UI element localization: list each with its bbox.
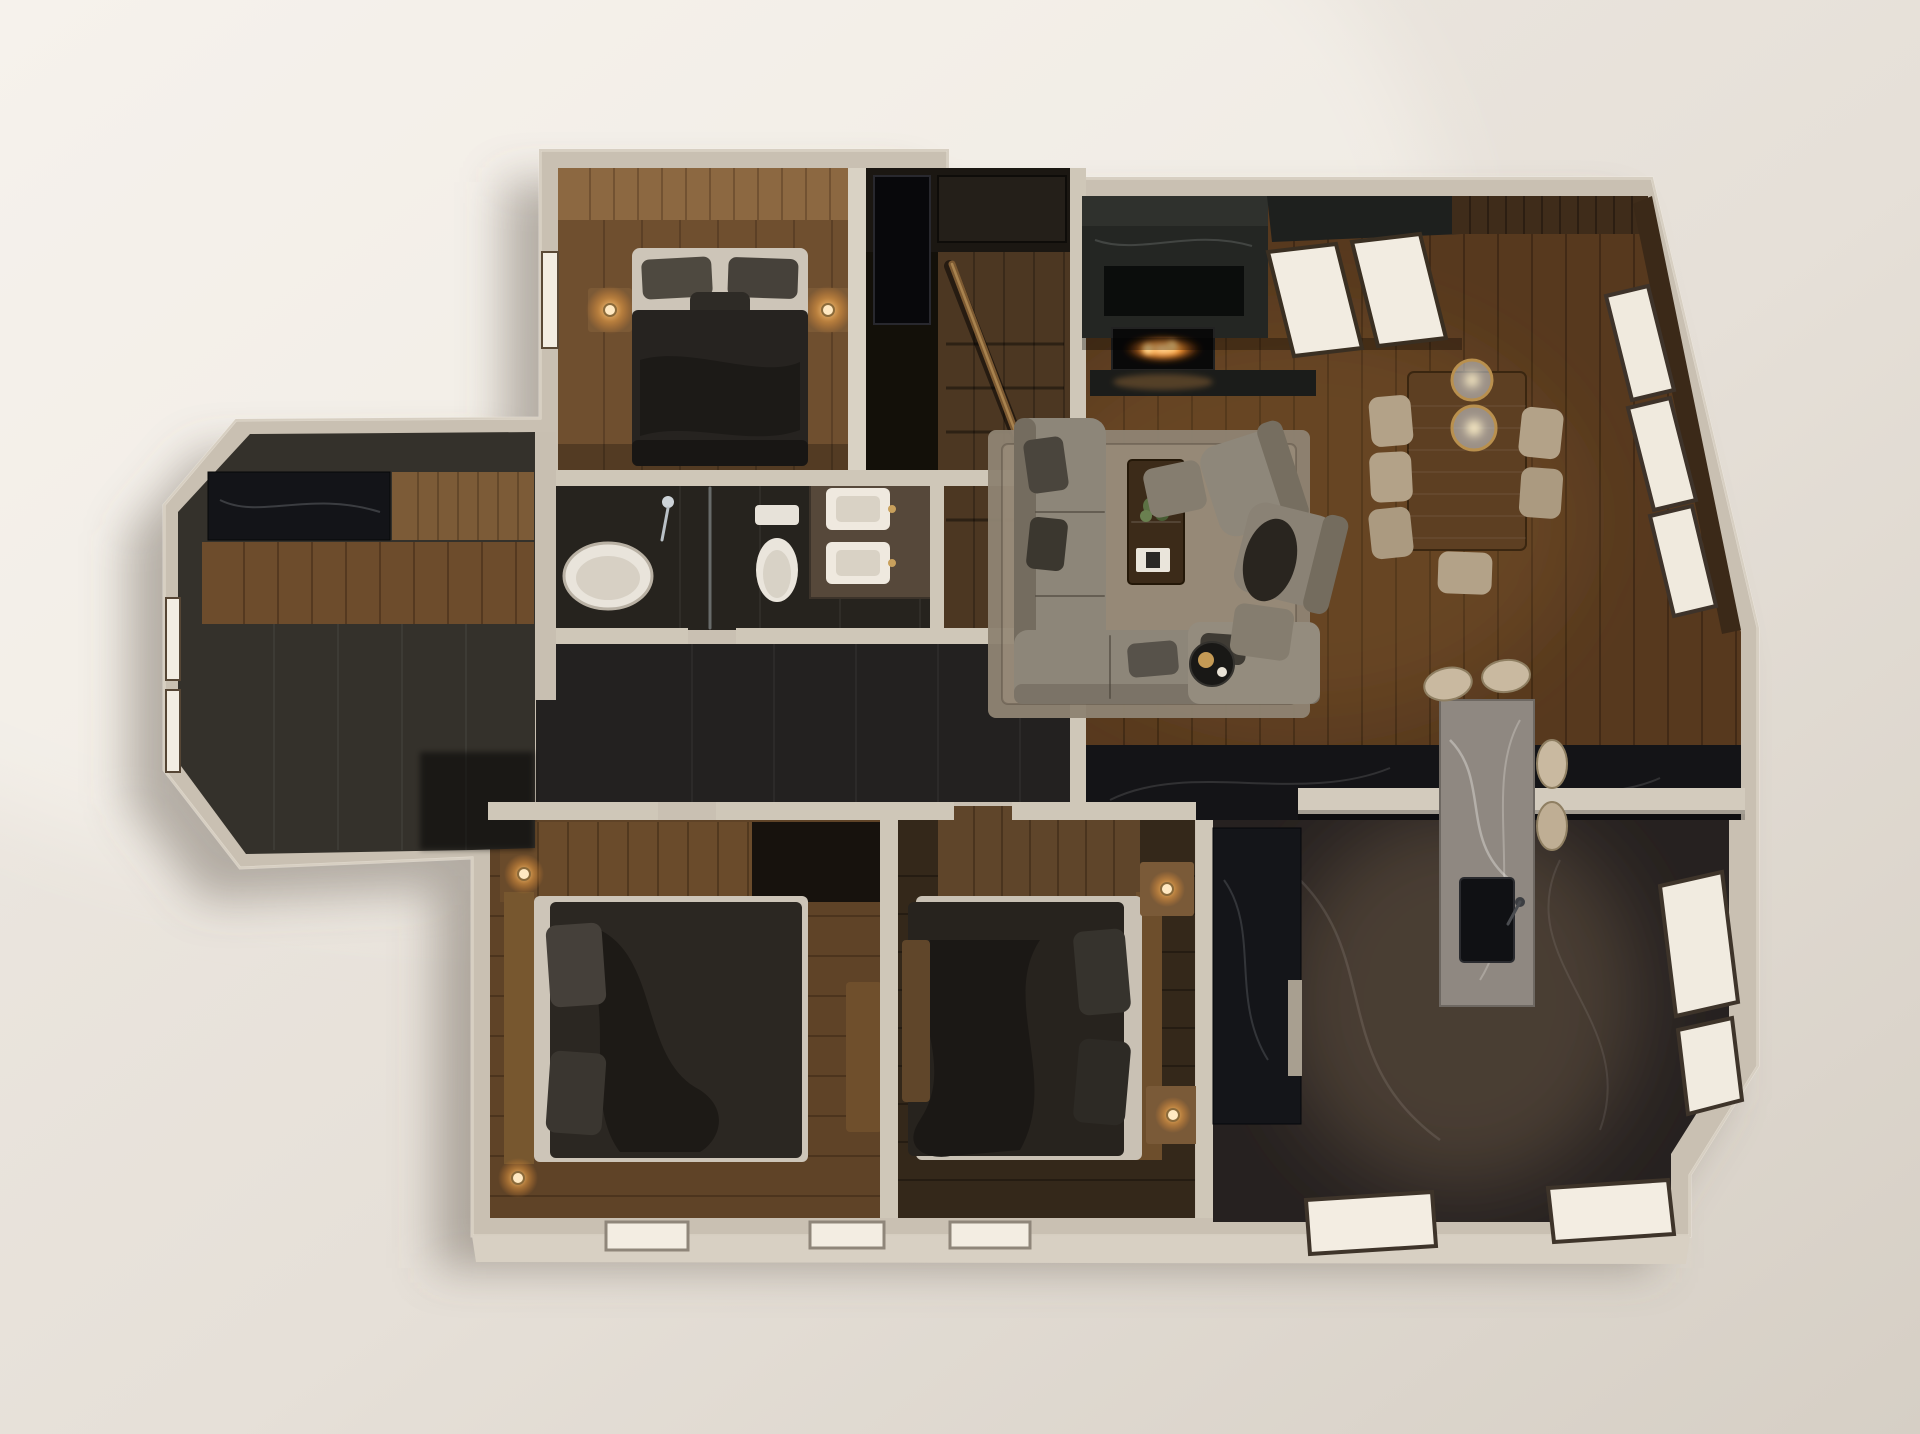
dining-chair-4: [1518, 406, 1565, 460]
floorplan-render: [0, 0, 1920, 1434]
bedroom2-pillow-1: [545, 922, 607, 1008]
vanity-faucet-top: [888, 505, 896, 513]
bedroom3-pillow-2: [1072, 1038, 1131, 1126]
wall-bathroom-stair: [930, 486, 944, 644]
toilet-tank: [755, 505, 799, 525]
bedroom2-closet-dark: [752, 822, 880, 902]
side-table-cup: [1217, 667, 1227, 677]
bedroom3-drape: [913, 940, 1040, 1157]
kitchen-east-window-2: [1678, 1018, 1742, 1114]
entry-window-bottom: [166, 690, 180, 772]
bedroom3-lamp-bottom: [1167, 1109, 1179, 1121]
sofa-pillow-1: [1022, 435, 1069, 494]
bedroom2-lamp-top: [518, 868, 530, 880]
master-lamp-left: [604, 304, 616, 316]
wall-hall-south-3: [1012, 802, 1196, 820]
south-window-bedroom2b: [810, 1222, 884, 1248]
bedroom2-lamp-bottom: [512, 1172, 524, 1184]
hallway-wing-passage: [536, 700, 556, 802]
wall-master-closet: [848, 168, 866, 472]
pendant-light-1-glow: [1465, 373, 1479, 387]
fireplace-hearth-glow: [1113, 374, 1213, 390]
kitchen-east-window-1: [1660, 872, 1738, 1016]
dining-chair-2: [1369, 451, 1414, 503]
bar-stool-4: [1537, 802, 1567, 850]
bathtub-inner: [576, 556, 640, 600]
entry-dark-corridor: [420, 752, 534, 850]
pendant-light-2-glow: [1466, 420, 1482, 436]
wall-bedroom3-kitchen: [1196, 820, 1213, 1218]
south-window-bedroom3: [950, 1222, 1030, 1248]
fireplace-marble-upper-right: [1267, 196, 1461, 242]
south-window-kitchen-1: [1306, 1192, 1436, 1254]
wall-hall-south-2: [716, 802, 954, 820]
plant-leaf-3: [1140, 510, 1152, 522]
bar-stool-3: [1537, 740, 1567, 788]
master-bed-throw: [640, 356, 800, 436]
bedroom2-pillow-2: [545, 1050, 607, 1136]
dining-chair-6: [1437, 551, 1492, 595]
wall-wing-bathroom: [536, 432, 556, 700]
vanity-faucet-bottom: [888, 559, 896, 567]
dining-north-wall: [1452, 196, 1648, 234]
floorplan-svg: [0, 0, 1920, 1434]
sofa-pillow-3: [1127, 640, 1180, 678]
tv-panel: [874, 176, 930, 324]
bedroom3-pillow-1: [1072, 928, 1131, 1016]
dining-chair-3: [1368, 506, 1415, 560]
wall-bedroom2-bedroom3: [880, 820, 898, 1218]
bedroom3-bench: [902, 940, 930, 1102]
wall-bath-hall-left: [556, 628, 688, 644]
south-window-bedroom2: [606, 1222, 688, 1250]
vanity-sink-top-basin: [836, 496, 880, 522]
kitchen-island-sink: [1460, 878, 1514, 962]
dining-chair-5: [1518, 467, 1563, 520]
master-lamp-right: [822, 304, 834, 316]
closet-wardrobe: [938, 176, 1066, 242]
master-window: [542, 252, 558, 348]
south-window-kitchen-2: [1548, 1180, 1674, 1242]
vanity-sink-bottom-basin: [836, 550, 880, 576]
bedroom3-lamp-top: [1161, 883, 1173, 895]
dining-chair-1: [1368, 394, 1414, 447]
master-bed-foot-shade: [632, 440, 808, 466]
bedroom2-bench: [846, 982, 882, 1132]
sofa-pillow-2: [1025, 516, 1068, 572]
entry-wood-cabinet-top: [392, 472, 534, 540]
fireplace-niche: [1104, 266, 1244, 316]
toilet-seat: [763, 550, 791, 598]
bedroom2-headboard: [504, 892, 534, 1164]
wall-hall-south-1: [488, 802, 658, 820]
fireplace-marble-mantel: [1082, 196, 1268, 226]
entry-cabinets: [202, 542, 534, 624]
entry-window-top: [166, 598, 180, 680]
ottoman-2: [1229, 602, 1296, 662]
shower-head: [662, 496, 674, 508]
side-table-gold-bowl: [1198, 652, 1214, 668]
coffee-table-book-mark: [1146, 552, 1160, 568]
kitchen-left-counter: [1213, 828, 1301, 1124]
